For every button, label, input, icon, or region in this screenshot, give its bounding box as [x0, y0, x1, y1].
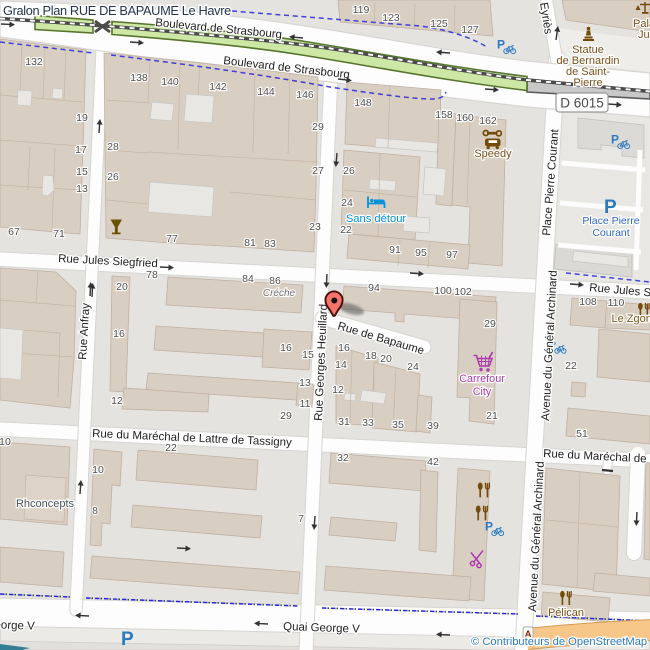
svg-text:15: 15 [76, 166, 88, 178]
svg-text:35: 35 [392, 419, 404, 431]
svg-text:Carrefour: Carrefour [459, 373, 505, 385]
svg-text:108: 108 [579, 296, 597, 308]
svg-text:84: 84 [242, 273, 254, 285]
svg-text:158: 158 [435, 109, 453, 121]
svg-text:10: 10 [0, 436, 11, 448]
svg-text:81: 81 [244, 237, 256, 249]
svg-text:42: 42 [427, 456, 439, 468]
svg-text:127: 127 [461, 24, 479, 36]
svg-text:27: 27 [312, 165, 324, 177]
svg-text:Pierre: Pierre [573, 77, 602, 89]
svg-text:15: 15 [302, 349, 314, 361]
svg-text:16: 16 [280, 342, 292, 354]
svg-text:32: 32 [337, 452, 349, 464]
svg-text:144: 144 [257, 86, 275, 98]
svg-text:© Contributeurs de OpenStreetM: © Contributeurs de OpenStreetMap [471, 636, 647, 648]
svg-text:28: 28 [107, 141, 119, 153]
svg-text:119: 119 [353, 4, 370, 16]
svg-text:22: 22 [340, 224, 352, 236]
svg-text:31: 31 [338, 416, 350, 428]
svg-text:160: 160 [456, 112, 474, 124]
svg-text:13: 13 [299, 377, 311, 389]
svg-text:162: 162 [479, 115, 497, 127]
svg-text:140: 140 [161, 76, 179, 88]
svg-text:94: 94 [368, 282, 380, 294]
svg-text:Justic: Justic [638, 29, 650, 41]
svg-text:12: 12 [332, 384, 344, 396]
svg-text:17: 17 [75, 144, 87, 156]
svg-text:39: 39 [427, 420, 439, 432]
svg-text:8: 8 [92, 505, 98, 517]
svg-text:10: 10 [92, 464, 104, 476]
svg-text:146: 146 [296, 89, 314, 101]
svg-text:33: 33 [362, 417, 374, 429]
svg-text:97: 97 [446, 249, 458, 261]
svg-text:22: 22 [165, 442, 177, 454]
svg-text:83: 83 [264, 238, 276, 250]
svg-text:138: 138 [130, 72, 148, 84]
svg-text:12: 12 [111, 395, 123, 407]
svg-text:24: 24 [341, 197, 353, 209]
svg-text:7: 7 [298, 513, 304, 525]
svg-text:110: 110 [608, 297, 625, 309]
svg-text:14: 14 [335, 359, 347, 371]
svg-text:16: 16 [338, 342, 350, 354]
svg-text:11: 11 [300, 398, 311, 410]
svg-text:Speedy: Speedy [474, 148, 512, 160]
svg-text:78: 78 [146, 269, 158, 281]
svg-text:95: 95 [415, 247, 427, 259]
svg-text:Sans détour: Sans détour [346, 213, 407, 225]
svg-text:21: 21 [486, 410, 498, 422]
svg-text:86: 86 [269, 275, 281, 287]
svg-text:102: 102 [454, 286, 472, 298]
svg-text:142: 142 [209, 81, 227, 93]
svg-text:Gralon Plan RUE DE BAPAUME Le: Gralon Plan RUE DE BAPAUME Le Havre [3, 3, 231, 18]
svg-text:D 6015: D 6015 [560, 96, 604, 111]
svg-text:23: 23 [309, 221, 321, 233]
svg-text:Quai George V: Quai George V [0, 618, 35, 633]
svg-text:26: 26 [107, 171, 119, 183]
svg-text:Créche: Créche [263, 288, 296, 299]
svg-text:26: 26 [343, 165, 355, 177]
svg-text:20: 20 [380, 353, 392, 365]
svg-text:Le Zgort: Le Zgort [612, 313, 650, 325]
svg-text:Pélican: Pélican [548, 607, 584, 619]
svg-text:16: 16 [113, 328, 125, 340]
svg-text:20: 20 [116, 281, 128, 293]
svg-text:City: City [473, 386, 492, 398]
svg-text:123: 123 [382, 12, 400, 24]
svg-text:29: 29 [280, 410, 292, 422]
svg-text:29: 29 [484, 318, 496, 330]
svg-text:71: 71 [53, 228, 65, 240]
svg-text:18: 18 [365, 350, 377, 362]
svg-text:100: 100 [434, 285, 452, 297]
svg-text:148: 148 [354, 97, 372, 109]
svg-text:67: 67 [8, 226, 20, 238]
svg-text:P: P [121, 629, 134, 650]
svg-text:77: 77 [166, 233, 178, 245]
svg-text:125: 125 [430, 18, 448, 30]
svg-text:132: 132 [25, 56, 43, 68]
svg-text:Rhconcepts: Rhconcepts [16, 498, 75, 510]
svg-text:13: 13 [76, 183, 88, 195]
svg-text:22: 22 [565, 360, 577, 372]
svg-text:91: 91 [389, 244, 401, 256]
svg-text:Courant: Courant [592, 227, 629, 239]
svg-text:24: 24 [407, 361, 419, 373]
svg-text:29: 29 [312, 121, 324, 133]
svg-text:19: 19 [76, 112, 88, 124]
svg-text:Place Pierre: Place Pierre [582, 215, 639, 227]
svg-text:51: 51 [576, 428, 588, 440]
